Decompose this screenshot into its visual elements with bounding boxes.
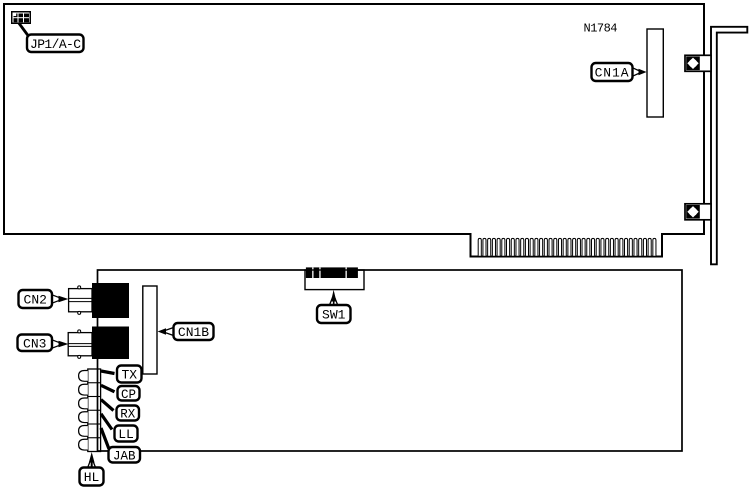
svg-text:JP1/A-C: JP1/A-C	[30, 37, 81, 52]
svg-text:LL: LL	[118, 427, 134, 442]
svg-text:CN3: CN3	[23, 336, 46, 351]
svg-text:CN1A: CN1A	[595, 66, 630, 81]
svg-text:N1784: N1784	[584, 22, 618, 36]
svg-text:HL: HL	[84, 470, 100, 485]
svg-text:JAB: JAB	[113, 449, 136, 463]
svg-text:RX: RX	[120, 408, 136, 422]
svg-text:CP: CP	[121, 388, 136, 402]
svg-text:CN2: CN2	[24, 293, 47, 308]
svg-text:TX: TX	[121, 368, 137, 383]
svg-text:SW1: SW1	[322, 308, 346, 323]
svg-text:CN1B: CN1B	[178, 325, 209, 340]
